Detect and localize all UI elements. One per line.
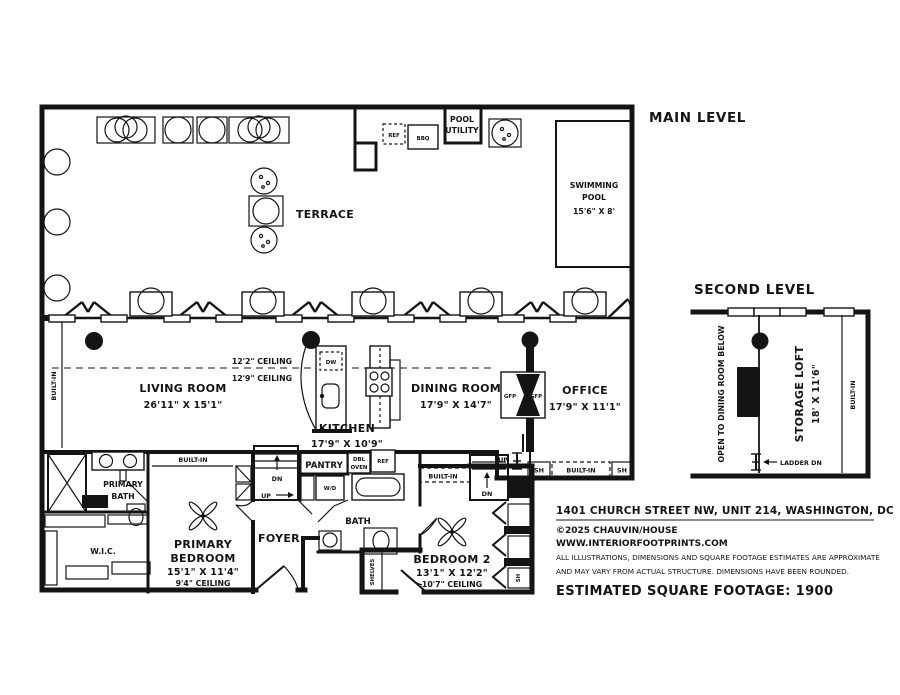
- gfp-left-label: GFP: [504, 394, 516, 400]
- storage-loft-label: STORAGE LOFT: [793, 345, 806, 442]
- footer-disclaimer-2: AND MAY VARY FROM ACTUAL STRUCTURE. DIME…: [556, 567, 849, 576]
- dishwasher-label: DW: [326, 360, 336, 366]
- outdoor-ref-label: REF: [388, 133, 400, 139]
- office-built-ins: SH BUILT-IN SH: [528, 462, 632, 477]
- dbl-oven-label-2: OVEN: [351, 465, 368, 471]
- primary-bedroom: BUILT-IN PRIMARY BEDROOM 15'1" X 11'4" 9…: [148, 452, 253, 592]
- office-dims: 17'9" X 11'1": [549, 402, 621, 413]
- kitchen-label: KITCHEN: [319, 422, 375, 435]
- terrace-trees-middle: [249, 168, 283, 253]
- bbq-label: BBQ: [417, 136, 430, 142]
- bedroom-section: PRIMARY BATH W.I.C. BUILT-IN: [42, 434, 532, 592]
- dining-room-dims: 17'9" X 14'7": [420, 400, 492, 411]
- kitchen-dims: 17'9" X 10'9": [311, 439, 383, 450]
- bedroom2-ceiling: 10'7" CEILING: [422, 580, 482, 589]
- office-sh-left: SH: [534, 467, 544, 475]
- second-level-title: SECOND LEVEL: [694, 282, 815, 298]
- second-level-plan: OPEN TO DINING ROOM BELOW STORAGE LOFT 1…: [693, 308, 868, 476]
- window-band: [42, 288, 632, 322]
- main-level-plan: TERRACE: [42, 107, 632, 592]
- pool-utility-area: REF BBQ POOL UTILITY: [355, 107, 521, 170]
- office-sh-right: SH: [617, 467, 627, 475]
- terrace-planters-top: [97, 116, 289, 143]
- foyer-east-wall: [303, 538, 318, 590]
- living-built-in-label: BUILT-IN: [50, 371, 58, 400]
- office-built-in-label: BUILT-IN: [566, 467, 595, 475]
- pool-label-1: SWIMMING: [570, 181, 618, 190]
- pool-dims: 15'6" X 8': [573, 207, 615, 216]
- storage-loft-dims: 18' X 11'6": [811, 364, 822, 424]
- main-level-title: MAIN LEVEL: [649, 110, 746, 126]
- shelves-strip: SHELVES: [364, 552, 382, 592]
- ladder-dn-label: LADDER DN: [780, 459, 822, 467]
- ceiling-upper-label: 12'2" CEILING: [232, 357, 292, 366]
- ceiling-lower-label: 12'9" CEILING: [232, 374, 292, 383]
- primary-bedroom-ceiling: 9'4" CEILING: [176, 579, 231, 588]
- living-room-dims: 26'11" X 15'1": [144, 400, 223, 411]
- primary-bath-label-1: PRIMARY: [103, 480, 143, 489]
- ceiling-fan-icon: [187, 500, 218, 531]
- primary-bath-label-2: BATH: [111, 492, 134, 501]
- floor-plan-page: TERRACE: [0, 0, 900, 695]
- foyer-stairs: DN UP: [254, 446, 312, 514]
- dbl-oven-label-1: DBL: [353, 457, 366, 463]
- footer-square-footage: ESTIMATED SQUARE FOOTAGE: 1900: [556, 584, 833, 599]
- ladder-dn: LADDER DN: [751, 454, 822, 470]
- terrace-label: TERRACE: [296, 208, 354, 221]
- loft-up-label: UP: [498, 456, 508, 464]
- column: [85, 332, 103, 350]
- swimming-pool: SWIMMING POOL 15'6" X 8': [556, 121, 632, 267]
- bath2-label: BATH: [345, 517, 371, 527]
- ceiling-fan-icon: [436, 516, 467, 547]
- footer-website: WWW.INTERIORFOOTPRINTS.COM: [556, 539, 728, 549]
- bedroom2-dims: 13'1" X 12'2": [416, 568, 488, 579]
- ref-label: REF: [377, 459, 389, 465]
- pool-utility-label-2: UTILITY: [445, 126, 479, 135]
- column: [752, 333, 769, 350]
- primary-bedroom-label-1: PRIMARY: [174, 538, 233, 551]
- foyer-label: FOYER: [258, 532, 300, 545]
- footer-block: 1401 CHURCH STREET NW, UNIT 214, WASHING…: [556, 505, 894, 599]
- primary-bedroom-dims: 15'1" X 11'4": [167, 567, 239, 578]
- stairs-dn-label: DN: [272, 475, 283, 483]
- dining-room-label: DINING ROOM: [411, 382, 501, 395]
- entry-door: [258, 566, 298, 589]
- bedroom2-dn-label: DN: [482, 490, 493, 498]
- washer-dryer-label: W/D: [324, 486, 337, 492]
- primary-bedroom-label-2: BEDROOM: [170, 552, 235, 565]
- pool-utility-label-1: POOL: [450, 115, 474, 124]
- bedroom2-sh-label: SH: [516, 573, 522, 582]
- loft-black-mass: [737, 367, 760, 417]
- bedroom2-built-in: BUILT-IN: [428, 473, 457, 481]
- bedroom2-label: BEDROOM 2: [413, 553, 490, 566]
- footer-address: 1401 CHURCH STREET NW, UNIT 214, WASHING…: [556, 505, 894, 517]
- shelves-label: SHELVES: [370, 559, 376, 586]
- band-planters: [130, 288, 606, 316]
- footer-disclaimer-1: ALL ILLUSTRATIONS, DIMENSIONS AND SQUARE…: [556, 553, 880, 562]
- office-label: OFFICE: [562, 384, 608, 397]
- open-to-below-label: OPEN TO DINING ROOM BELOW: [717, 325, 726, 462]
- gfp-right-label: GFP: [530, 394, 542, 400]
- terrace-trees-left: [44, 149, 70, 301]
- bedroom2-closets: SH: [493, 502, 532, 588]
- loft-windows: [728, 308, 854, 316]
- wic-label: W.I.C.: [90, 547, 116, 556]
- walk-in-closet: W.I.C.: [42, 512, 150, 585]
- floor-plan-drawing: TERRACE: [0, 0, 900, 695]
- terrace-area: TERRACE: [44, 107, 632, 301]
- pool-label-2: POOL: [582, 193, 606, 202]
- footer-copyright: ©2025 CHAUVIN/HOUSE: [556, 526, 678, 536]
- pantry-label: PANTRY: [305, 461, 343, 471]
- primary-bedroom-built-in: BUILT-IN: [178, 456, 207, 464]
- living-room-label: LIVING ROOM: [139, 382, 226, 395]
- stairs-up-label: UP: [261, 492, 271, 500]
- kitchen-fixtures: DW: [301, 346, 400, 431]
- loft-built-in-label: BUILT-IN: [849, 380, 857, 409]
